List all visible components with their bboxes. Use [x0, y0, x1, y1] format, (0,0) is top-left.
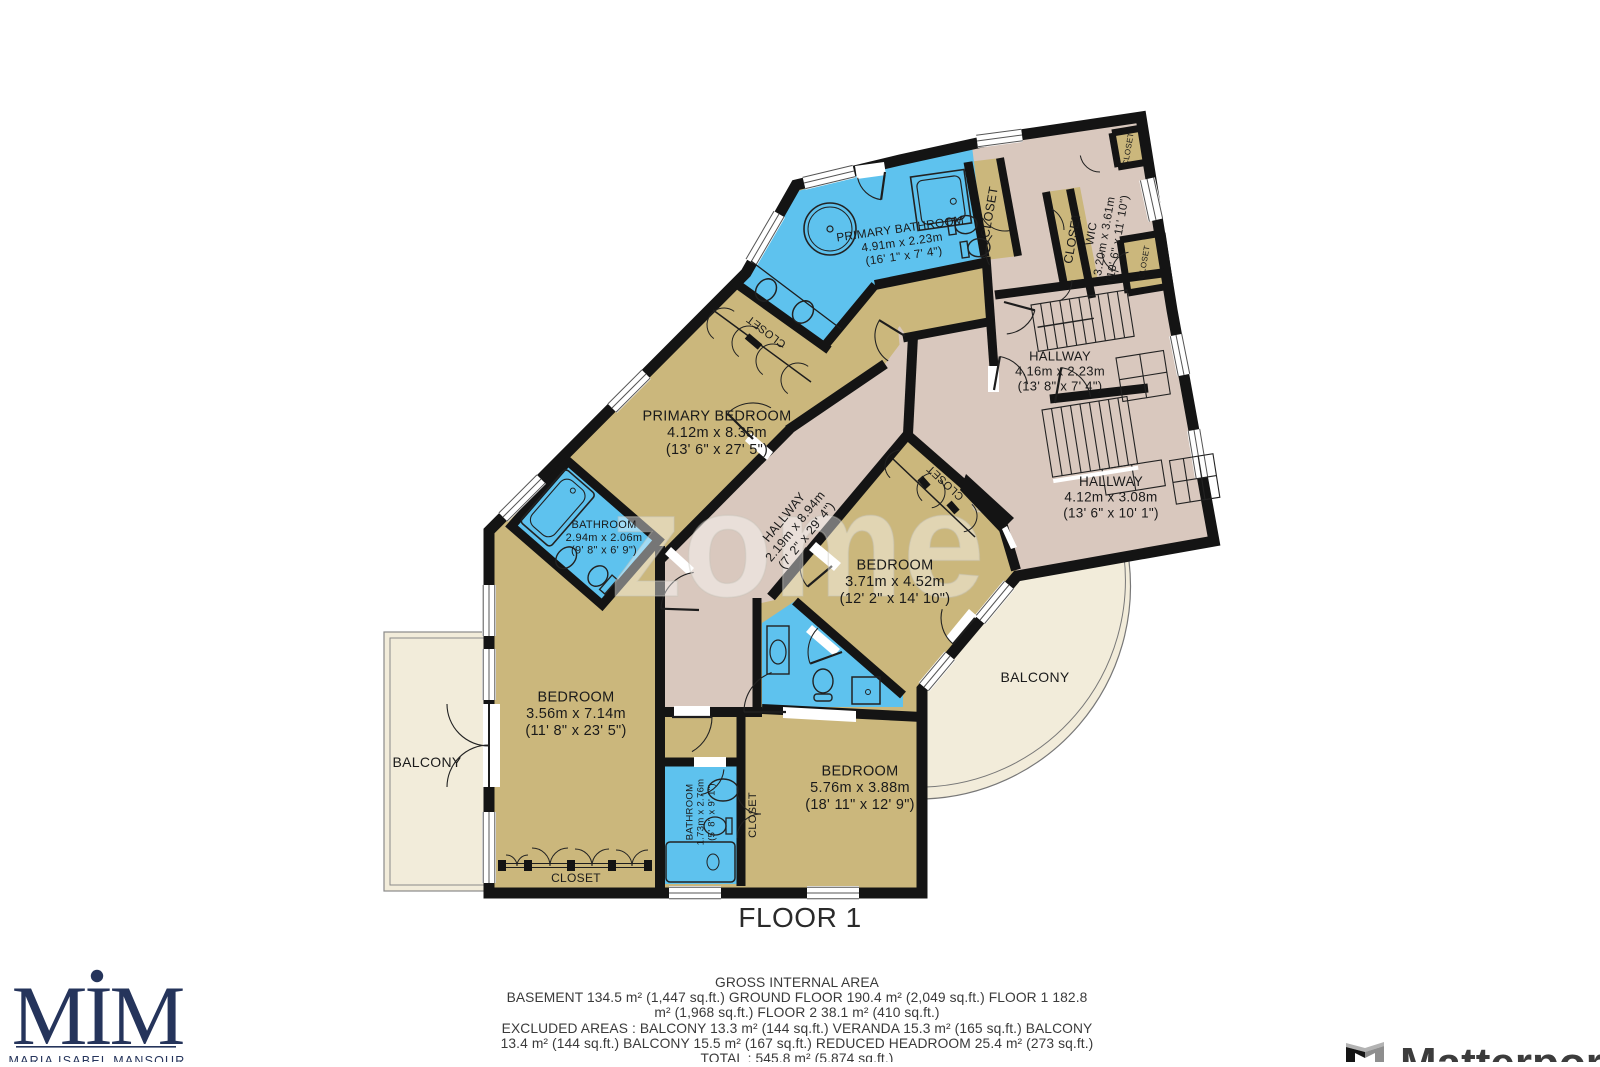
svg-text:4.12m x 8.35m: 4.12m x 8.35m: [667, 425, 767, 441]
svg-text:BATHROOM: BATHROOM: [684, 784, 695, 841]
svg-text:BEDROOM: BEDROOM: [821, 763, 898, 779]
svg-text:MARIA ISABEL MANSOUR: MARIA ISABEL MANSOUR: [8, 1054, 185, 1062]
svg-text:HALLWAY: HALLWAY: [1079, 474, 1143, 489]
svg-text:PRIMARY BEDROOM: PRIMARY BEDROOM: [643, 408, 792, 424]
svg-text:GROSS INTERNAL AREA: GROSS INTERNAL AREA: [715, 975, 880, 990]
svg-text:FLOOR 1: FLOOR 1: [738, 902, 861, 933]
svg-text:BASEMENT 134.5 m² (1,447 sq.ft: BASEMENT 134.5 m² (1,447 sq.ft.) GROUND …: [507, 990, 1088, 1005]
svg-text:2.94m x 2.06m: 2.94m x 2.06m: [566, 532, 643, 544]
svg-text:(11' 8" x 23' 5"): (11' 8" x 23' 5"): [525, 723, 626, 739]
svg-text:CLOSET: CLOSET: [747, 792, 759, 838]
svg-text:BEDROOM: BEDROOM: [537, 689, 614, 705]
svg-text:TOTAL : 545.8 m² (5,874 sq.ft: TOTAL : 545.8 m² (5,874 sq.ft.): [700, 1051, 893, 1062]
svg-text:Matterport: Matterport: [1400, 1039, 1600, 1062]
svg-text:(5' 8" x 9' 1"): (5' 8" x 9' 1"): [706, 783, 717, 841]
svg-text:HALLWAY: HALLWAY: [1029, 349, 1091, 364]
svg-text:(12' 2" x 14' 10"): (12' 2" x 14' 10"): [840, 591, 951, 607]
svg-text:BALCONY: BALCONY: [392, 754, 461, 770]
svg-text:1.73m x 2.76m: 1.73m x 2.76m: [695, 779, 706, 846]
svg-text:BEDROOM: BEDROOM: [856, 557, 933, 573]
svg-text:BATHROOM: BATHROOM: [571, 519, 636, 531]
svg-text:(18' 11" x 12' 9"): (18' 11" x 12' 9"): [805, 797, 915, 813]
svg-text:4.16m x 2.23m: 4.16m x 2.23m: [1015, 364, 1105, 379]
svg-text:4.12m x 3.08m: 4.12m x 3.08m: [1064, 490, 1157, 505]
svg-text:m² (1,968 sq.ft.) FLOOR 2 38: m² (1,968 sq.ft.) FLOOR 2 38.1 m² (410 s…: [654, 1005, 939, 1020]
svg-text:(13' 6" x 27' 5"): (13' 6" x 27' 5"): [666, 442, 768, 458]
svg-text:(13' 8" x 7' 4"): (13' 8" x 7' 4"): [1018, 379, 1103, 394]
svg-text:3.71m x 4.52m: 3.71m x 4.52m: [845, 574, 945, 590]
svg-text:(13' 6" x 10' 1"): (13' 6" x 10' 1"): [1063, 505, 1159, 520]
svg-text:13.4 m² (144 sq.ft.) BALCONY: 13.4 m² (144 sq.ft.) BALCONY 15.5 m² (16…: [501, 1036, 1094, 1051]
svg-text:MIM: MIM: [12, 969, 184, 1062]
svg-text:BALCONY: BALCONY: [1000, 669, 1069, 685]
svg-text:3.56m x 7.14m: 3.56m x 7.14m: [526, 706, 626, 722]
svg-text:EXCLUDED AREAS : BALCONY 13.: EXCLUDED AREAS : BALCONY 13.3 m² (144 sq…: [502, 1021, 1093, 1036]
svg-text:CLOSET: CLOSET: [551, 871, 601, 885]
svg-text:5.76m x 3.88m: 5.76m x 3.88m: [810, 780, 910, 796]
svg-text:(9' 8" x 6' 9"): (9' 8" x 6' 9"): [571, 545, 637, 557]
